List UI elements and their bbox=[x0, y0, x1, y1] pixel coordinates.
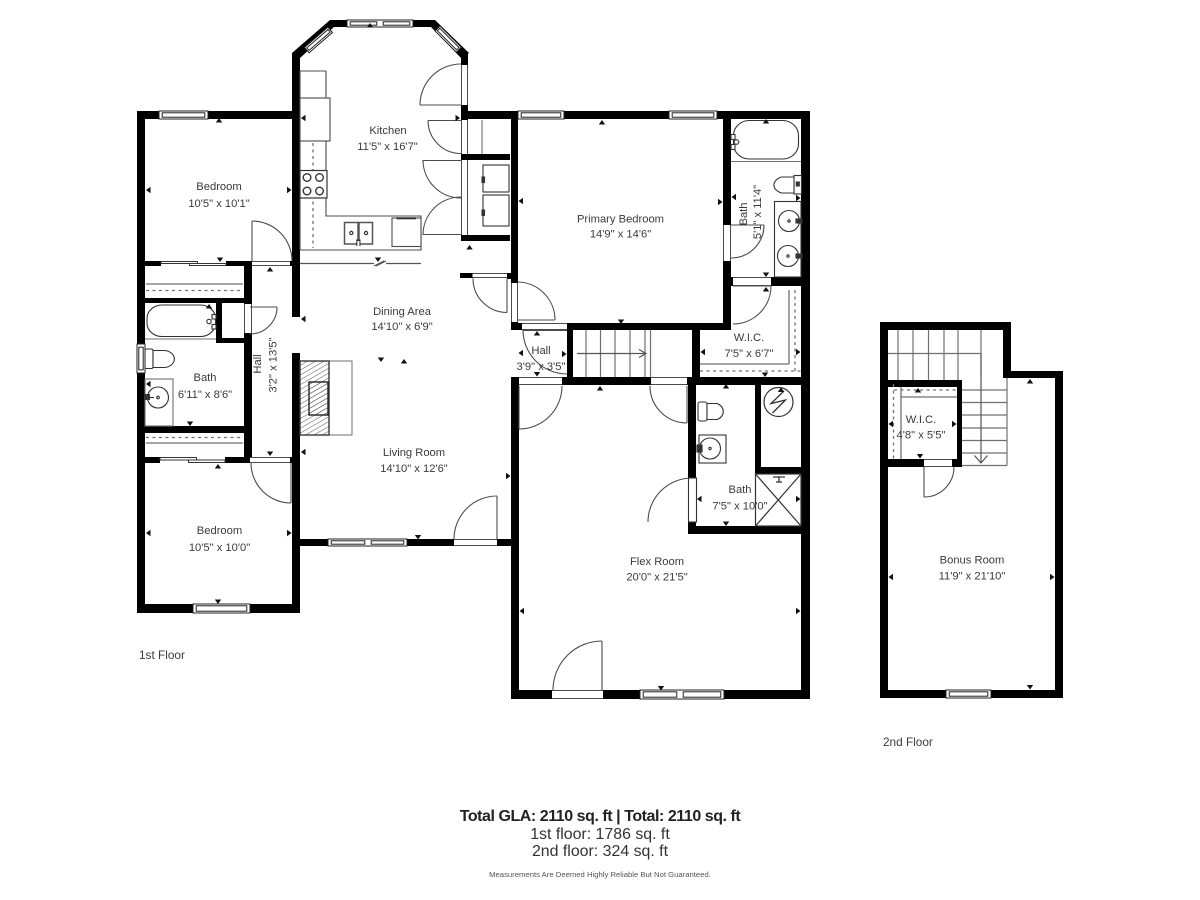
svg-text:11'5" x 16'7": 11'5" x 16'7" bbox=[357, 141, 418, 153]
svg-text:Bath: Bath bbox=[738, 202, 750, 225]
svg-text:Bonus Room: Bonus Room bbox=[940, 555, 1005, 567]
svg-text:Bedroom: Bedroom bbox=[197, 525, 242, 537]
svg-text:4'8" x 5'5": 4'8" x 5'5" bbox=[897, 430, 946, 442]
svg-text:5'1" x 11'4": 5'1" x 11'4" bbox=[752, 185, 764, 239]
svg-text:3'9" x 3'5": 3'9" x 3'5" bbox=[517, 361, 566, 373]
svg-text:Flex Room: Flex Room bbox=[630, 556, 684, 568]
svg-text:Living Room: Living Room bbox=[383, 447, 445, 459]
svg-text:7'5" x 10'0": 7'5" x 10'0" bbox=[712, 501, 767, 513]
svg-text:10'5" x 10'0": 10'5" x 10'0" bbox=[189, 542, 250, 554]
svg-text:W.I.C.: W.I.C. bbox=[734, 332, 764, 344]
svg-text:20'0" x 21'5": 20'0" x 21'5" bbox=[626, 572, 687, 584]
svg-text:Bath: Bath bbox=[193, 372, 216, 384]
svg-text:1st floor: 1786 sq. ft: 1st floor: 1786 sq. ft bbox=[530, 826, 670, 843]
svg-text:14'10" x 6'9": 14'10" x 6'9" bbox=[371, 321, 432, 333]
svg-text:Dining Area: Dining Area bbox=[373, 306, 432, 318]
svg-text:Hall: Hall bbox=[531, 345, 550, 357]
svg-text:Primary Bedroom: Primary Bedroom bbox=[577, 213, 664, 225]
svg-text:14'10" x 12'6": 14'10" x 12'6" bbox=[380, 463, 448, 475]
svg-text:3'2" x 13'5": 3'2" x 13'5" bbox=[268, 337, 280, 392]
svg-text:Measurements Are Deemed Highly: Measurements Are Deemed Highly Reliable … bbox=[489, 870, 711, 879]
svg-text:6'11" x 8'6": 6'11" x 8'6" bbox=[178, 389, 232, 401]
svg-text:7'5" x 6'7": 7'5" x 6'7" bbox=[725, 348, 774, 360]
svg-text:Kitchen: Kitchen bbox=[369, 125, 406, 137]
svg-text:14'9" x 14'6": 14'9" x 14'6" bbox=[590, 229, 651, 241]
svg-text:11'9" x 21'10": 11'9" x 21'10" bbox=[939, 571, 1006, 583]
svg-text:Total GLA: 2110 sq. ft | Total: Total GLA: 2110 sq. ft | Total: 2110 sq.… bbox=[460, 808, 742, 825]
svg-text:2nd Floor: 2nd Floor bbox=[883, 735, 933, 749]
svg-text:10'5" x 10'1": 10'5" x 10'1" bbox=[188, 198, 249, 210]
svg-text:Hall: Hall bbox=[252, 354, 264, 373]
svg-text:W.I.C.: W.I.C. bbox=[906, 414, 936, 426]
svg-text:Bedroom: Bedroom bbox=[196, 181, 241, 193]
svg-text:2nd floor: 324 sq. ft: 2nd floor: 324 sq. ft bbox=[532, 843, 669, 860]
svg-text:Bath: Bath bbox=[728, 484, 751, 496]
svg-text:1st Floor: 1st Floor bbox=[139, 648, 185, 662]
